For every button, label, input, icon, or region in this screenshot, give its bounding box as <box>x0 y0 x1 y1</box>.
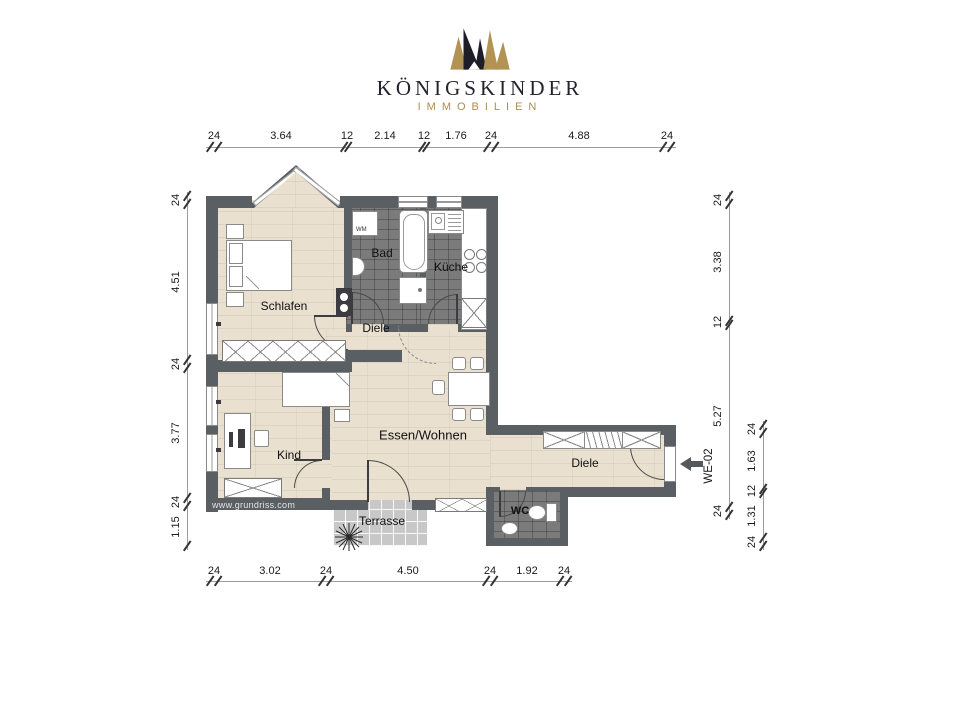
brand-crown-icon <box>447 26 513 72</box>
shower-drain <box>418 288 422 292</box>
dim-top-1: 3.64 <box>270 130 291 142</box>
kind-dresser <box>224 478 282 498</box>
room-label-diele-mitte: Diele <box>362 321 389 335</box>
wall-living-bottom-c <box>487 500 494 510</box>
dim-line-bottom <box>206 581 572 582</box>
shaft-dot-2 <box>340 304 348 312</box>
window-kind-left-1 <box>206 386 218 426</box>
kind-nightstand <box>334 409 350 422</box>
dining-chair-3 <box>432 380 445 395</box>
wall-schlafen-bad <box>344 208 352 290</box>
dining-chair-1 <box>452 357 466 370</box>
corridor-wardrobe <box>543 431 661 449</box>
pillow-1 <box>229 243 243 264</box>
wardrobe-cell-x2 <box>623 432 660 448</box>
dim-left-0: 24 <box>170 194 182 206</box>
wardrobe-cell-coatrack <box>585 432 623 448</box>
dim-top-5: 1.76 <box>445 130 466 142</box>
dim-rout-2: 12 <box>746 485 758 497</box>
entrance-opening <box>664 446 676 482</box>
washing-machine-label: WM <box>356 227 367 233</box>
door-leaf-wc <box>499 491 501 517</box>
wall-wc-top-b <box>526 487 560 491</box>
wall-living-bottom-b <box>412 500 435 510</box>
sink-drainboard <box>448 213 461 231</box>
window-schlafen-left <box>206 303 218 355</box>
pillow-2 <box>229 266 243 287</box>
dim-bottom-3: 4.50 <box>397 565 418 577</box>
door-leaf-terrasse <box>367 460 369 502</box>
dining-chair-4 <box>452 408 466 421</box>
dim-top-4: 12 <box>418 130 430 142</box>
dim-bottom-1: 3.02 <box>259 565 280 577</box>
unit-label: WE-02 <box>703 448 715 483</box>
wardrobe-cell-x1 <box>544 432 585 448</box>
dim-line-top <box>206 147 676 148</box>
room-label-kueche: Küche <box>434 260 468 274</box>
dim-rin-3: 5.27 <box>712 405 724 426</box>
brand-name: KÖNIGSKINDER <box>0 76 960 101</box>
dim-rout-1: 1.63 <box>746 450 758 471</box>
sink-faucet-dot <box>435 217 442 224</box>
shaft-dot-1 <box>340 293 348 301</box>
dim-top-7: 4.88 <box>568 130 589 142</box>
dining-table <box>448 372 490 406</box>
wall-corridor-bottom <box>560 487 676 497</box>
dim-bottom-0: 24 <box>208 565 220 577</box>
dim-left-4: 24 <box>170 496 182 508</box>
dim-rout-4: 24 <box>746 536 758 548</box>
entrance-arrow-shaft <box>690 461 703 467</box>
single-bed-fold <box>336 373 349 386</box>
room-label-diele-flur: Diele <box>571 456 598 470</box>
room-label-essen-wohnen: Essen/Wohnen <box>379 428 467 443</box>
dim-left-2: 24 <box>170 358 182 370</box>
schlafen-wardrobe <box>222 340 346 362</box>
room-label-kind: Kind <box>277 448 301 462</box>
window-kueche-top <box>436 196 462 208</box>
floor-plan-page: KÖNIGSKINDER IMMOBILIEN www.grundriss.co… <box>0 0 960 720</box>
dining-chair-5 <box>470 408 484 421</box>
wall-wc-bottom <box>486 538 568 546</box>
room-label-wc: WC <box>511 505 529 517</box>
radiator-mark-3 <box>216 448 221 452</box>
dim-rin-1: 3.38 <box>712 251 724 272</box>
nightstand-bottom <box>226 292 244 307</box>
room-label-terrasse: Terrasse <box>359 514 405 528</box>
living-low-window <box>435 498 487 512</box>
door-leaf-kueche <box>456 294 458 324</box>
wall-kind-right-b <box>322 488 330 502</box>
door-leaf-schlafen <box>314 315 348 317</box>
radiator-mark-1 <box>216 322 221 326</box>
desk-monitor <box>229 432 233 447</box>
dim-top-6: 24 <box>485 130 497 142</box>
toilet-tank <box>546 503 557 522</box>
dim-rin-0: 24 <box>712 194 724 206</box>
stove-burner-4 <box>476 262 487 273</box>
wall-living-bottom-a <box>330 500 368 510</box>
nightstand-top <box>226 224 244 239</box>
dim-top-0: 24 <box>208 130 220 142</box>
dim-bottom-4: 24 <box>484 565 496 577</box>
washbasin-wc <box>501 522 518 535</box>
dim-bottom-2: 24 <box>320 565 332 577</box>
dim-top-8: 24 <box>661 130 673 142</box>
brand-subtitle: IMMOBILIEN <box>0 101 960 113</box>
radiator-mark-2 <box>216 400 221 404</box>
desk-chair <box>254 430 269 447</box>
dim-left-5: 1.15 <box>170 516 182 537</box>
dim-rin-4: 24 <box>712 505 724 517</box>
dim-bottom-6: 24 <box>558 565 570 577</box>
dim-bottom-5: 1.92 <box>516 565 537 577</box>
dim-left-3: 3.77 <box>170 422 182 443</box>
stove-burner-1 <box>464 249 475 260</box>
window-bad-top <box>398 196 428 208</box>
dim-rin-2: 12 <box>712 316 724 328</box>
bed-fold <box>246 276 259 289</box>
dim-rout-0: 24 <box>746 423 758 435</box>
kitchen-appliance <box>461 298 487 328</box>
room-label-schlafen: Schlafen <box>261 299 308 313</box>
desk-pc-tower <box>238 429 245 448</box>
dim-left-1: 4.51 <box>170 271 182 292</box>
shower <box>399 277 427 304</box>
dim-top-3: 2.14 <box>374 130 395 142</box>
dim-rout-3: 1.31 <box>746 505 758 526</box>
room-label-bad: Bad <box>371 246 392 260</box>
wall-hall-stub <box>352 350 402 362</box>
bathtub-inner <box>403 214 425 270</box>
stove-burner-2 <box>476 249 487 260</box>
dim-line-right-inner <box>729 192 730 519</box>
dining-chair-2 <box>470 357 484 370</box>
window-kind-left-2 <box>206 434 218 472</box>
watermark-text: www.grundriss.com <box>212 500 295 510</box>
door-leaf-bad <box>351 292 353 324</box>
toilet-bowl <box>528 505 546 520</box>
dim-top-2: 12 <box>341 130 353 142</box>
